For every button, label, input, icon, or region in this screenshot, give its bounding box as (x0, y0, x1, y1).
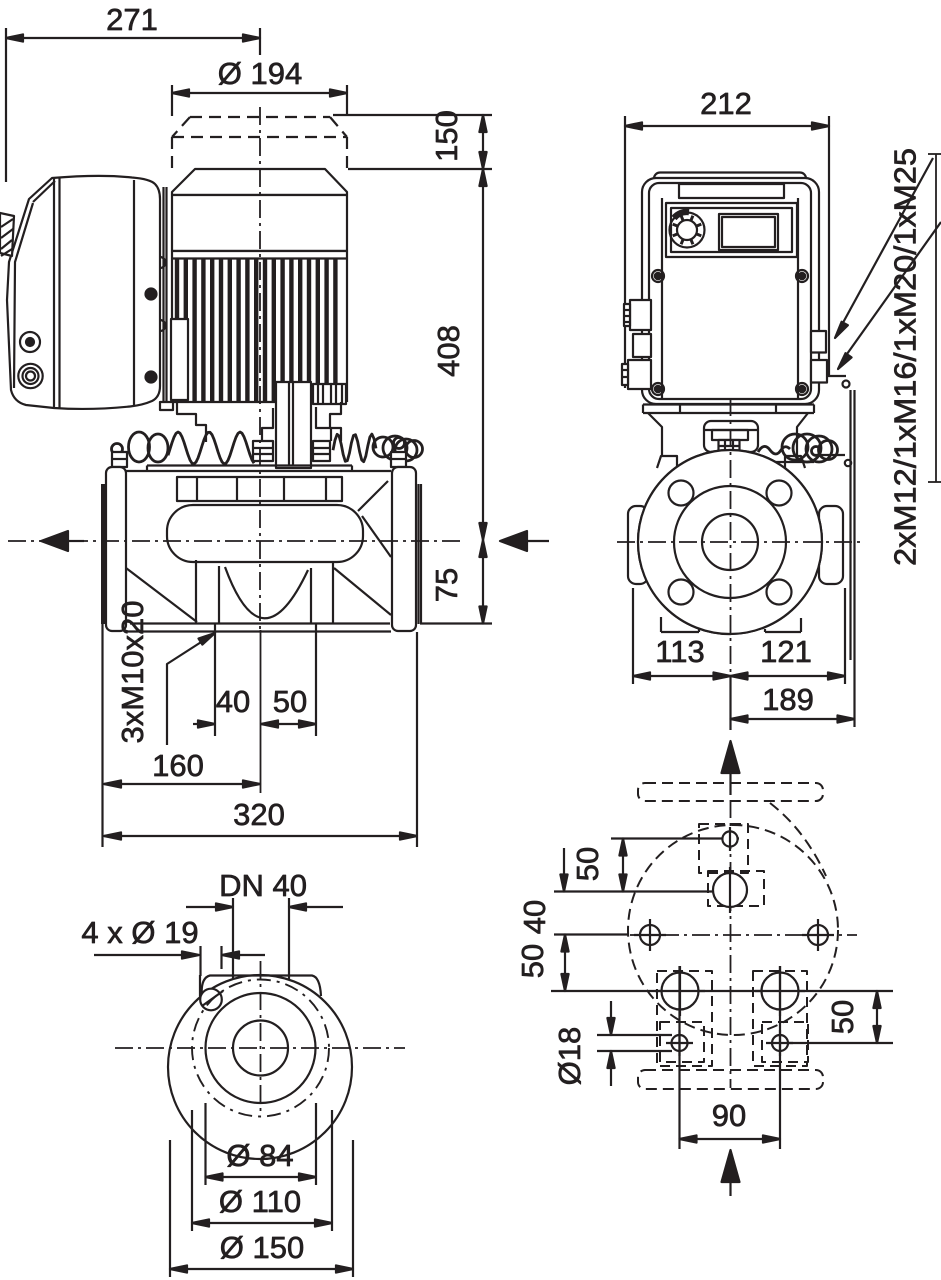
svg-text:75: 75 (429, 568, 464, 602)
svg-text:113: 113 (655, 634, 704, 669)
svg-text:150: 150 (429, 110, 464, 162)
svg-text:320: 320 (233, 797, 285, 832)
svg-text:Ø 150: Ø 150 (220, 1230, 304, 1265)
svg-text:4 x Ø 19: 4 x Ø 19 (81, 915, 198, 950)
svg-text:Ø 110: Ø 110 (219, 1184, 301, 1219)
svg-text:DN 40: DN 40 (219, 868, 307, 903)
svg-text:50: 50 (825, 1000, 860, 1034)
svg-text:40: 40 (216, 684, 250, 719)
svg-text:212: 212 (700, 86, 752, 121)
svg-text:Ø 84: Ø 84 (226, 1138, 293, 1173)
svg-text:Ø18: Ø18 (552, 1027, 587, 1086)
svg-text:271: 271 (106, 2, 158, 37)
svg-text:189: 189 (762, 682, 814, 717)
svg-text:3xM10x20: 3xM10x20 (115, 600, 150, 743)
svg-text:40: 40 (517, 900, 552, 934)
svg-text:408: 408 (431, 325, 466, 377)
svg-text:90: 90 (712, 1098, 746, 1133)
svg-text:Ø 194: Ø 194 (218, 56, 302, 91)
svg-text:121: 121 (760, 634, 812, 669)
svg-text:160: 160 (152, 748, 204, 783)
svg-text:50: 50 (570, 847, 605, 881)
svg-text:50: 50 (273, 684, 307, 719)
svg-text:50: 50 (515, 944, 550, 978)
